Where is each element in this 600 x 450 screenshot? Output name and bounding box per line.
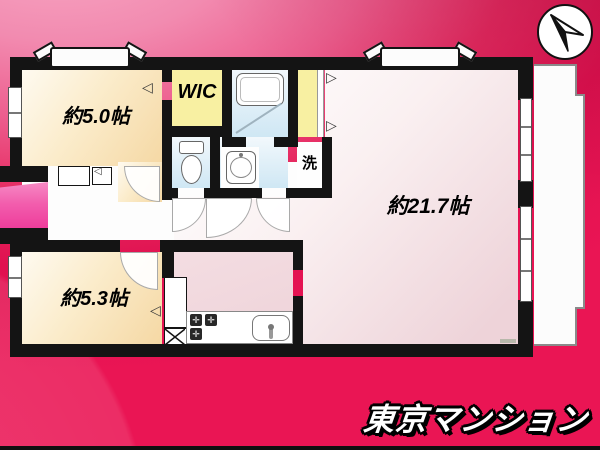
- folding-door-arrow-icon: ◁: [94, 167, 102, 177]
- wall: [162, 100, 172, 200]
- room-label-wic: WIC: [170, 81, 224, 104]
- window: [520, 206, 532, 302]
- wall: [10, 57, 22, 89]
- wall: [10, 344, 533, 357]
- toilet-icon: [177, 141, 207, 187]
- bay-window: [380, 47, 460, 68]
- shoe-cabinet: [58, 166, 90, 186]
- bathtub-icon: [236, 73, 284, 106]
- wall: [162, 252, 174, 278]
- bottom-border: [0, 446, 600, 450]
- folding-door-arrow-icon: ▷: [326, 118, 337, 132]
- room-label-living: 約21.7帖: [366, 190, 490, 220]
- wall: [10, 240, 120, 252]
- closet-fold-door: [317, 70, 324, 137]
- wall: [10, 296, 22, 344]
- room-label-bedroom1: 約5.0帖: [36, 100, 156, 129]
- wall: [10, 136, 22, 168]
- flyer-canvas: ✛ ✛ ✛: [0, 0, 600, 450]
- stove-icon: ✛ ✛ ✛: [189, 314, 223, 342]
- bay-window: [50, 47, 130, 68]
- window: [8, 256, 22, 298]
- folding-door-arrow-icon: ◁: [142, 80, 153, 94]
- wall: [162, 188, 178, 198]
- wall: [288, 70, 298, 142]
- wall: [222, 137, 246, 147]
- washbasin-icon: [226, 151, 256, 184]
- room-label-laundry: 洗: [297, 152, 322, 173]
- closet-living: [297, 70, 319, 137]
- wall: [274, 137, 298, 147]
- wall: [160, 240, 303, 252]
- kitchen-closet: [164, 277, 187, 328]
- wall: [518, 180, 533, 208]
- entrance-marker: [0, 182, 48, 228]
- brand-logo: 東京マンション: [362, 394, 591, 439]
- folding-door-arrow-icon: ▷: [326, 70, 337, 84]
- balcony: [531, 58, 591, 350]
- meter-box: [500, 339, 516, 343]
- wall: [293, 296, 303, 344]
- wall: [0, 166, 48, 182]
- window: [8, 87, 22, 138]
- wall: [204, 188, 262, 198]
- kitchen-sink-icon: [252, 315, 290, 341]
- wall: [322, 137, 332, 198]
- window: [520, 98, 532, 182]
- wall: [518, 57, 533, 100]
- north-arrow-icon: [537, 4, 593, 60]
- wall: [518, 300, 533, 344]
- wall: [293, 252, 303, 270]
- room-label-bedroom2: 約5.3帖: [34, 282, 154, 311]
